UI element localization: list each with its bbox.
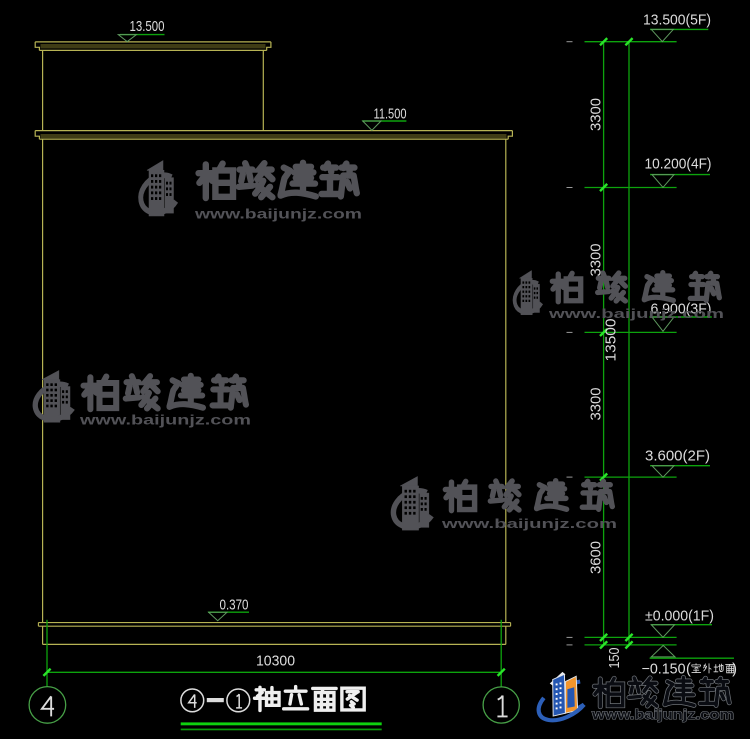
- svg-text:3600: 3600: [588, 541, 605, 574]
- svg-text:3.600(2F): 3.600(2F): [645, 449, 710, 465]
- svg-text:www.baijunjz.com: www.baijunjz.com: [547, 307, 724, 321]
- svg-text:3300: 3300: [588, 388, 605, 421]
- svg-text:−0.150: −0.150: [642, 662, 686, 678]
- svg-text:www.baijunjz.com: www.baijunjz.com: [591, 706, 734, 722]
- svg-text:10.200(4F): 10.200(4F): [645, 157, 712, 173]
- svg-text:150: 150: [607, 648, 623, 669]
- svg-text:0.370: 0.370: [220, 598, 249, 614]
- svg-text:10300: 10300: [256, 653, 295, 670]
- svg-text:13500: 13500: [604, 319, 620, 362]
- svg-text:www.baijunjz.com: www.baijunjz.com: [194, 206, 362, 222]
- svg-text:(: (: [686, 662, 691, 678]
- svg-text:3300: 3300: [588, 98, 605, 131]
- svg-text:11.500: 11.500: [374, 106, 407, 122]
- svg-text:±0.000(1F): ±0.000(1F): [645, 609, 714, 625]
- svg-text:): ): [732, 662, 737, 678]
- svg-text:13.500: 13.500: [130, 19, 165, 35]
- svg-text:www.baijunjz.com: www.baijunjz.com: [79, 412, 251, 428]
- svg-text:13.500(5F): 13.500(5F): [643, 13, 711, 29]
- svg-text:www.baijunjz.com: www.baijunjz.com: [440, 516, 617, 531]
